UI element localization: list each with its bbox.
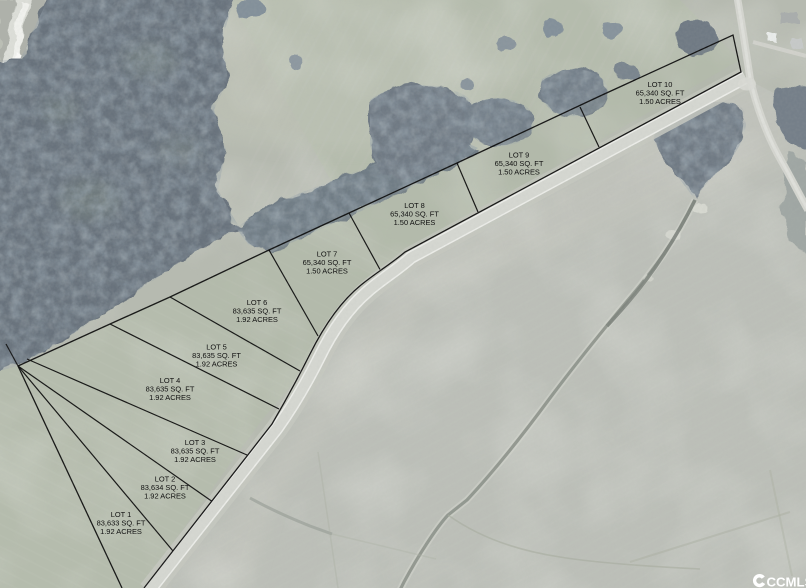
svg-text:1.92 ACRES: 1.92 ACRES	[174, 455, 216, 464]
svg-text:1.92 ACRES: 1.92 ACRES	[144, 492, 186, 501]
svg-text:1.92 ACRES: 1.92 ACRES	[236, 315, 278, 324]
svg-text:1.50 ACRES: 1.50 ACRES	[498, 168, 540, 177]
svg-text:1.92 ACRES: 1.92 ACRES	[149, 393, 191, 402]
svg-text:1.50 ACRES: 1.50 ACRES	[639, 97, 681, 106]
svg-text:1.92 ACRES: 1.92 ACRES	[100, 527, 142, 536]
svg-text:1.92 ACRES: 1.92 ACRES	[196, 360, 238, 369]
svg-text:1.50 ACRES: 1.50 ACRES	[306, 267, 348, 276]
svg-text:CCMLS: CCMLS	[767, 575, 806, 588]
svg-text:1.50 ACRES: 1.50 ACRES	[394, 218, 436, 227]
